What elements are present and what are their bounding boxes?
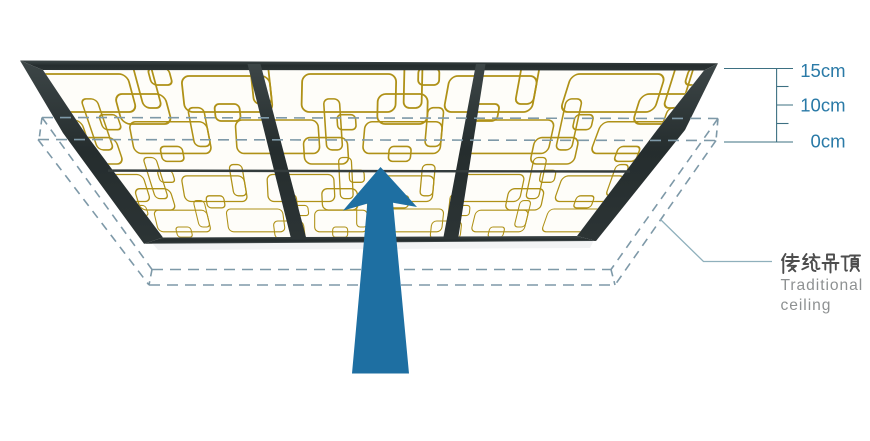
svg-text:ceiling: ceiling	[781, 297, 832, 314]
svg-text:10cm: 10cm	[800, 95, 845, 116]
svg-text:15cm: 15cm	[800, 60, 845, 81]
svg-text:Traditional: Traditional	[781, 277, 864, 294]
svg-text:0cm: 0cm	[811, 131, 846, 152]
